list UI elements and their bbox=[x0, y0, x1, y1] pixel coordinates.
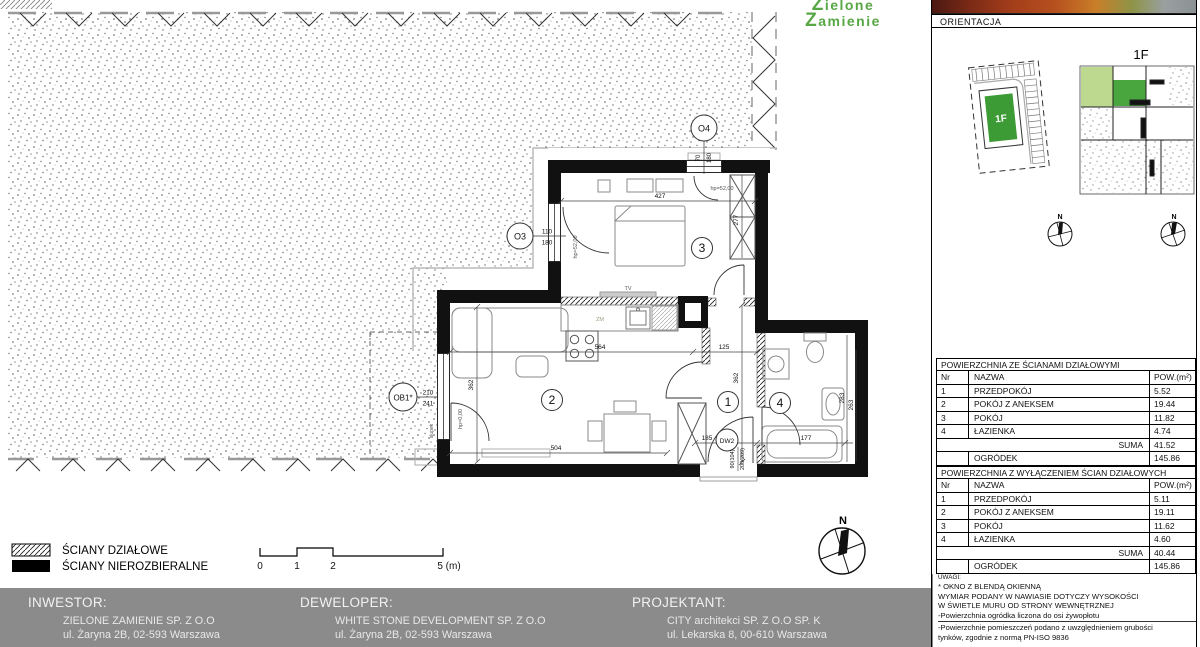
cell-name: PRZEDPOKÓJ bbox=[969, 385, 1150, 398]
footer-deweloper: DEWELOPER: WHITE STONE DEVELOPMENT SP. Z… bbox=[300, 595, 546, 641]
garden-label: OGRÓDEK bbox=[969, 452, 1150, 465]
dim-entry: 185 bbox=[702, 435, 713, 442]
north-letter: N bbox=[1171, 214, 1176, 221]
cell-nr: 1 bbox=[937, 493, 969, 506]
title-block-footer: INWESTOR: ZIELONE ZAMIENIE SP. Z O.O ul.… bbox=[0, 588, 931, 647]
note-line: WYMIAR PODANY W NAWIASIE DOTYCZY WYSOKOŚ… bbox=[938, 592, 1196, 602]
dim-hall-width: 125 bbox=[719, 344, 730, 351]
table-header-row: Nr NAZWA POW.(m²) bbox=[936, 479, 1196, 493]
cell-area: 5.11 bbox=[1150, 493, 1195, 506]
sill-note-b1: hp=0,00 bbox=[458, 409, 464, 429]
scale-bar: 0 1 2 5 (m) bbox=[257, 548, 460, 572]
sheet-corner-hatch bbox=[0, 0, 52, 9]
cell-name: PRZEDPOKÓJ bbox=[969, 493, 1150, 506]
room-number: 3 bbox=[699, 241, 706, 255]
legend: ŚCIANY DZIAŁOWE ŚCIANY NIEROZBIERALNE bbox=[12, 544, 208, 573]
cell-name: POKÓJ Z ANEKSEM bbox=[969, 506, 1150, 519]
legend-swatch-partition bbox=[12, 544, 50, 556]
cell-nr: 3 bbox=[937, 520, 969, 533]
site-unit-label: 1F bbox=[995, 113, 1008, 125]
room-number: 1 bbox=[725, 395, 732, 409]
marker-height: 200(209) bbox=[740, 448, 746, 470]
cell-name: ŁAZIENKA bbox=[969, 533, 1150, 546]
projektant-label: PROJEKTANT: bbox=[632, 595, 827, 610]
logo-line-2: Zamienie bbox=[793, 13, 893, 29]
col-nr: Nr bbox=[937, 479, 969, 492]
sill-note-04: hp=52,00 bbox=[710, 186, 733, 192]
cell-area: 19.44 bbox=[1150, 398, 1195, 411]
col-pow: POW.(m²) bbox=[1150, 479, 1195, 492]
cell-area: 4.74 bbox=[1150, 425, 1195, 438]
north-arrow-main: N bbox=[819, 515, 865, 574]
cell-nr: 3 bbox=[937, 412, 969, 425]
cell-area: 11.62 bbox=[1150, 520, 1195, 533]
sill-note-03: hp=52,00 bbox=[573, 235, 579, 258]
col-name: NAZWA bbox=[969, 371, 1150, 384]
cell-area: 5.52 bbox=[1150, 385, 1195, 398]
table-row: 1 PRZEDPOKÓJ 5.52 bbox=[936, 385, 1196, 399]
cell-area: 4.60 bbox=[1150, 533, 1195, 546]
zielone-zamienie-logo: Zielone Zamienie bbox=[793, 0, 893, 29]
legend-label-partition: ŚCIANY DZIAŁOWE bbox=[62, 544, 168, 557]
area-table-with-partitions: POWIERZCHNIA ZE ŚCIANAMI DZIAŁOWYMI Nr N… bbox=[936, 358, 1196, 466]
table-row: 3 POKÓJ 11.82 bbox=[936, 412, 1196, 426]
dim-bath-a: 283 bbox=[839, 392, 846, 403]
floor-key-map: 1F bbox=[1080, 47, 1194, 194]
dim-living-width: 564 bbox=[595, 344, 606, 351]
area-table-without-partitions: POWIERZCHNIA Z WYŁĄCZENIEM ŚCIAN DZIAŁOW… bbox=[936, 466, 1196, 574]
tv-label: TV bbox=[624, 286, 631, 292]
note-line: tynków, zgodnie z normą PN-ISO 9836 bbox=[938, 633, 1196, 643]
suma-value: 40.44 bbox=[1150, 547, 1195, 560]
marker-height: 241 bbox=[423, 401, 434, 408]
project-photo bbox=[932, 0, 1196, 14]
entrance-threshold bbox=[700, 477, 757, 481]
cell-area: 19.11 bbox=[1150, 506, 1195, 519]
post-note: słupek bbox=[429, 423, 435, 438]
room-label-bedroom: 3 bbox=[692, 238, 713, 259]
dim-living-depth: 362 bbox=[468, 379, 475, 390]
table-row: 1 PRZEDPOKÓJ 5.11 bbox=[936, 493, 1196, 507]
north-arrow-key: N bbox=[1161, 214, 1185, 246]
legend-label-structural: ŚCIANY NIEROZBIERALNE bbox=[62, 560, 208, 573]
col-nr: Nr bbox=[937, 371, 969, 384]
table-row: 4 ŁAZIENKA 4.60 bbox=[936, 533, 1196, 547]
scale-tick-2: 2 bbox=[330, 561, 336, 572]
north-arrow-site: N bbox=[1048, 214, 1072, 246]
marker-code: DW2 bbox=[720, 438, 735, 445]
scale-tick-1: 1 bbox=[294, 561, 300, 572]
dim-wardrobe: 277 bbox=[733, 214, 740, 225]
suma-label: SUMA bbox=[937, 439, 1150, 452]
garden-value: 145.86 bbox=[1150, 560, 1195, 573]
cell-name: POKÓJ bbox=[969, 520, 1150, 533]
table-garden-row: OGRÓDEK 145.86 bbox=[936, 560, 1196, 574]
cell-nr: 4 bbox=[937, 425, 969, 438]
note-line: W ŚWIETLE MURU OD STRONY WEWNĘTRZNEJ bbox=[938, 601, 1196, 611]
notes-block: UWAGI: * OKNO Z BLENDĄ OKIENNĄ WYMIAR PO… bbox=[932, 574, 1196, 647]
deweloper-name: WHITE STONE DEVELOPMENT SP. Z O.O bbox=[335, 615, 546, 627]
dim-bathtub: 177 bbox=[801, 435, 812, 442]
room-label-living: 2 bbox=[542, 390, 563, 411]
marker-width: 110 bbox=[542, 229, 553, 236]
table-title: POWIERZCHNIA Z WYŁĄCZENIEM ŚCIAN DZIAŁOW… bbox=[936, 466, 1196, 479]
marker-width: 90(104) bbox=[730, 449, 736, 468]
col-pow: POW.(m²) bbox=[1150, 371, 1195, 384]
scale-tick-5: 5 (m) bbox=[437, 561, 460, 572]
room-label-hall: 1 bbox=[718, 392, 739, 413]
cell-nr: 4 bbox=[937, 533, 969, 546]
inwestor-label: INWESTOR: bbox=[28, 595, 220, 610]
suma-label: SUMA bbox=[937, 547, 1150, 560]
vent-shaft-core bbox=[685, 303, 701, 321]
table-title: POWIERZCHNIA ZE ŚCIANAMI DZIAŁOWYMI bbox=[936, 358, 1196, 371]
note-line: UWAGI: bbox=[938, 574, 1196, 582]
cell-nr: 2 bbox=[937, 506, 969, 519]
key-garden-highlight bbox=[1081, 67, 1113, 107]
north-letter: N bbox=[1057, 214, 1062, 221]
room-number: 4 bbox=[777, 396, 784, 410]
dim-bedroom-width: 427 bbox=[655, 193, 666, 200]
table-suma-row: SUMA 40.44 bbox=[936, 547, 1196, 561]
cell-nr bbox=[937, 560, 969, 573]
table-garden-row: OGRÓDEK 145.86 bbox=[936, 452, 1196, 466]
marker-code: O3 bbox=[514, 232, 526, 242]
cell-name: POKÓJ Z ANEKSEM bbox=[969, 398, 1150, 411]
cell-nr bbox=[937, 452, 969, 465]
garden-label: OGRÓDEK bbox=[969, 560, 1150, 573]
projektant-name: CITY architekci SP. Z O.O SP. K bbox=[667, 615, 827, 627]
dim-hall-depth: 362 bbox=[733, 372, 740, 383]
marker-height: 180 bbox=[542, 240, 553, 247]
suma-value: 41.52 bbox=[1150, 439, 1195, 452]
cell-name: ŁAZIENKA bbox=[969, 425, 1150, 438]
table-suma-row: SUMA 41.52 bbox=[936, 439, 1196, 453]
cell-nr: 1 bbox=[937, 385, 969, 398]
floor-key-title: 1F bbox=[1133, 47, 1148, 62]
marker-code: OB1* bbox=[393, 394, 412, 403]
marker-height: 180 bbox=[707, 152, 713, 163]
site-map: 1F bbox=[969, 61, 1050, 174]
room-label-bath: 4 bbox=[770, 393, 791, 414]
marker-code: O4 bbox=[698, 124, 710, 134]
col-name: NAZWA bbox=[969, 479, 1150, 492]
table-row: 2 POKÓJ Z ANEKSEM 19.44 bbox=[936, 398, 1196, 412]
cell-area: 11.82 bbox=[1150, 412, 1195, 425]
panel-divider bbox=[931, 0, 932, 647]
orientation-header: ORIENTACJA bbox=[932, 14, 1196, 28]
scale-tick-0: 0 bbox=[257, 561, 263, 572]
table-row: 4 ŁAZIENKA 4.74 bbox=[936, 425, 1196, 439]
parking-row-top bbox=[972, 63, 1035, 81]
note-line: -Powierzchnie pomieszczeń podano z uwzgl… bbox=[938, 621, 1196, 633]
table-row: 3 POKÓJ 11.62 bbox=[936, 520, 1196, 534]
north-letter: N bbox=[839, 515, 847, 527]
dishwasher-label: ZM bbox=[596, 317, 604, 323]
north-needle bbox=[838, 529, 849, 556]
inwestor-address: ul. Żaryna 2B, 02-593 Warszawa bbox=[63, 629, 220, 641]
garden-value: 145.86 bbox=[1150, 452, 1195, 465]
cell-name: POKÓJ bbox=[969, 412, 1150, 425]
cell-nr: 2 bbox=[937, 398, 969, 411]
panel-right-border bbox=[1196, 0, 1197, 647]
dim-living-bottom: 504 bbox=[551, 445, 562, 452]
legend-swatch-structural bbox=[12, 560, 50, 572]
deweloper-address: ul. Żaryna 2B, 02-593 Warszawa bbox=[335, 629, 546, 641]
entrance-opening bbox=[700, 464, 757, 477]
note-line: -Powierzchnia ogródka liczona do osi żyw… bbox=[938, 611, 1196, 621]
footer-inwestor: INWESTOR: ZIELONE ZAMIENIE SP. Z O.O ul.… bbox=[28, 595, 220, 641]
dim-bath-b: 263 bbox=[848, 399, 855, 410]
inwestor-name: ZIELONE ZAMIENIE SP. Z O.O bbox=[63, 615, 220, 627]
tv bbox=[600, 292, 656, 297]
table-row: 2 POKÓJ Z ANEKSEM 19.11 bbox=[936, 506, 1196, 520]
hedge-zigzag-right bbox=[753, 16, 775, 148]
projektant-address: ul. Lekarska 8, 00-610 Warszawa bbox=[667, 629, 827, 641]
deweloper-label: DEWELOPER: bbox=[300, 595, 546, 610]
marker-width: 210 bbox=[423, 390, 434, 397]
note-line: * OKNO Z BLENDĄ OKIENNĄ bbox=[938, 582, 1196, 592]
kitchen-worktop bbox=[652, 306, 677, 330]
table-header-row: Nr NAZWA POW.(m²) bbox=[936, 371, 1196, 385]
hedge-zigzag-bottom bbox=[16, 459, 445, 471]
footer-projektant: PROJEKTANT: CITY architekci SP. Z O.O SP… bbox=[632, 595, 827, 641]
room-number: 2 bbox=[549, 393, 556, 407]
marker-width: 70 bbox=[696, 154, 702, 161]
